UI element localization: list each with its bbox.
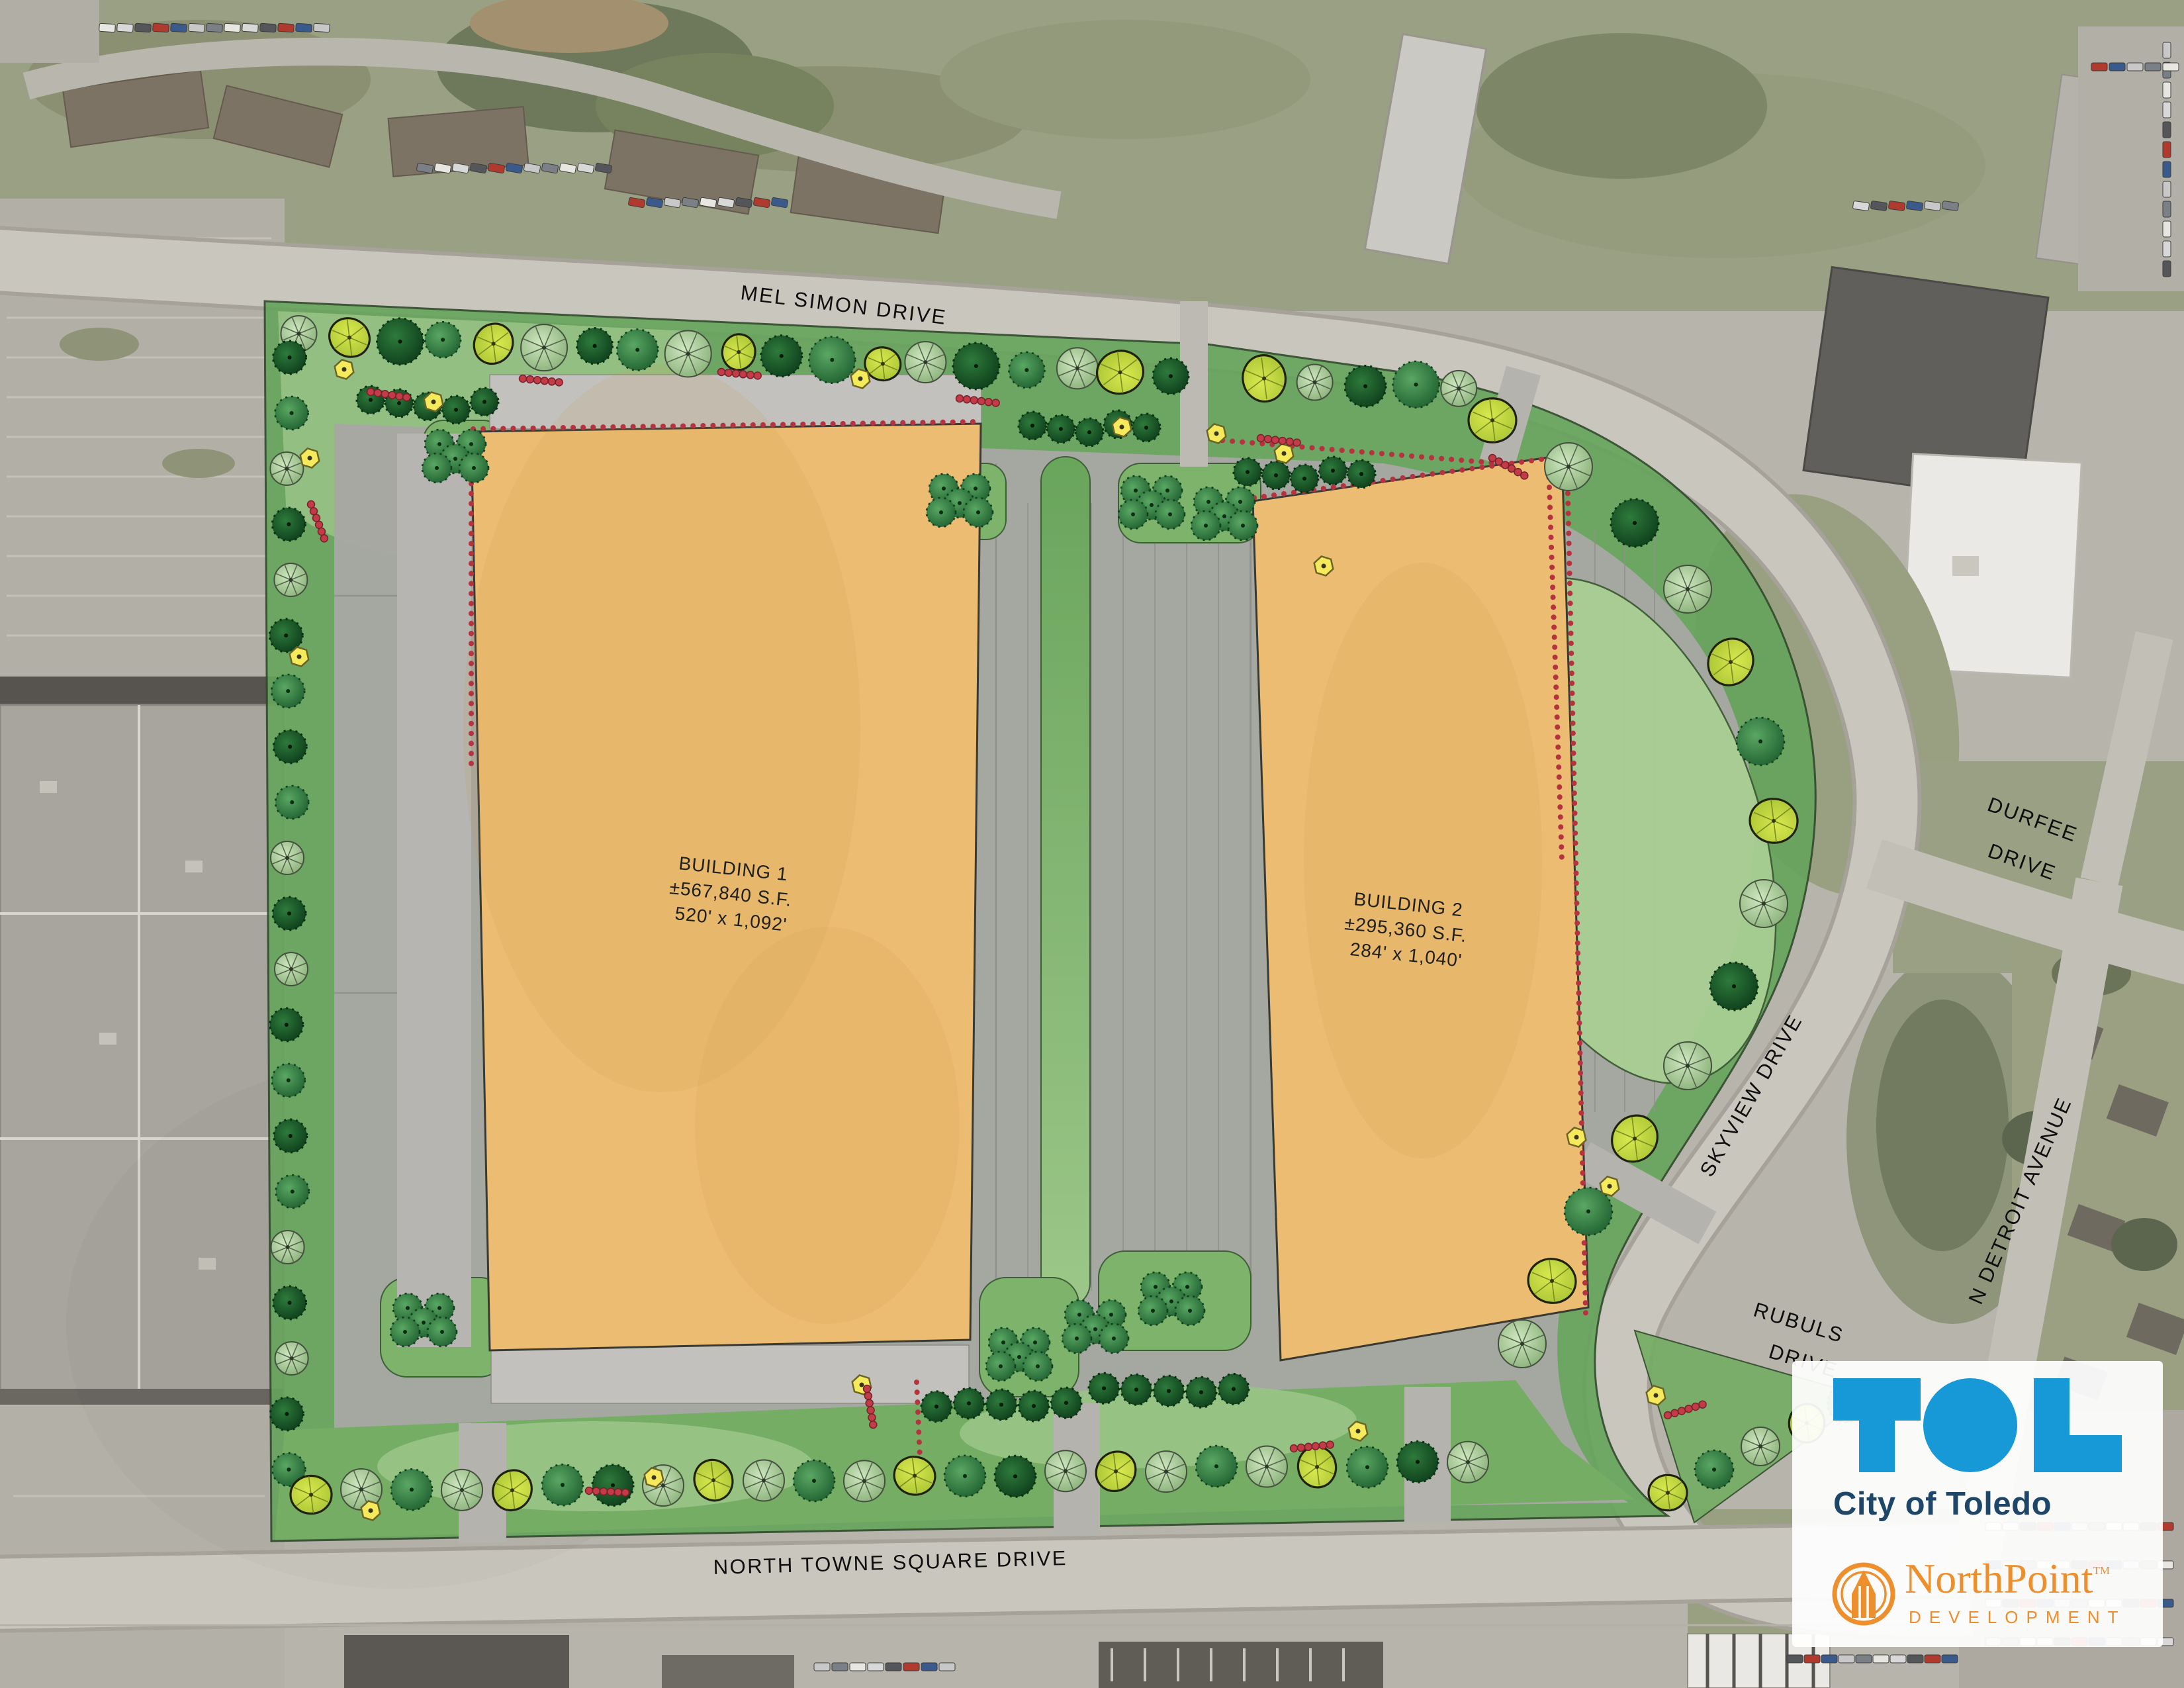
site-plan-scene: MEL SIMON DRIVE NORTH TOWNE SQUARE DRIVE… bbox=[0, 0, 2184, 1688]
northpoint-name: NorthPointTM bbox=[1905, 1554, 2110, 1603]
branding-card: City of Toledo NorthPointTM DEVELOPMENT bbox=[1792, 1361, 2163, 1647]
city-of-toledo-label: City of Toledo bbox=[1833, 1485, 2052, 1523]
tol-logo bbox=[1833, 1378, 2122, 1472]
northpoint-monument-icon bbox=[1831, 1561, 1897, 1627]
building-1-label: BUILDING 1 ±567,840 S.F. 520' x 1,092' bbox=[666, 852, 801, 936]
northpoint-logo: NorthPointTM DEVELOPMENT bbox=[1831, 1560, 2142, 1639]
trademark-symbol: TM bbox=[2093, 1564, 2110, 1577]
median-strip bbox=[1041, 457, 1090, 1307]
northpoint-subtitle: DEVELOPMENT bbox=[1909, 1607, 2126, 1628]
building-2-label: BUILDING 2 ±295,360 S.F. 284' x 1,040' bbox=[1341, 888, 1476, 972]
